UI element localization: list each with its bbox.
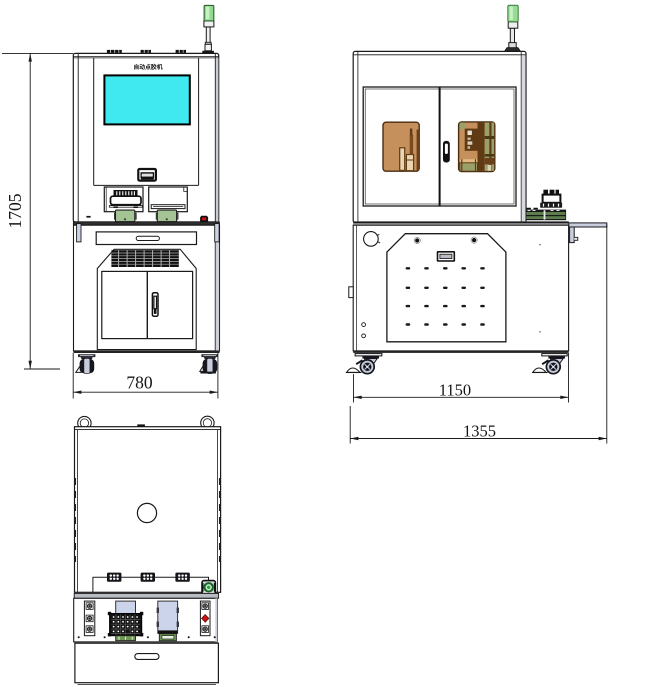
svg-text:780: 780 bbox=[126, 373, 153, 393]
svg-text:1150: 1150 bbox=[439, 381, 471, 400]
svg-text:1355: 1355 bbox=[463, 422, 496, 441]
svg-text:自动点胶机: 自动点胶机 bbox=[134, 63, 163, 71]
svg-text:1705: 1705 bbox=[5, 193, 25, 228]
